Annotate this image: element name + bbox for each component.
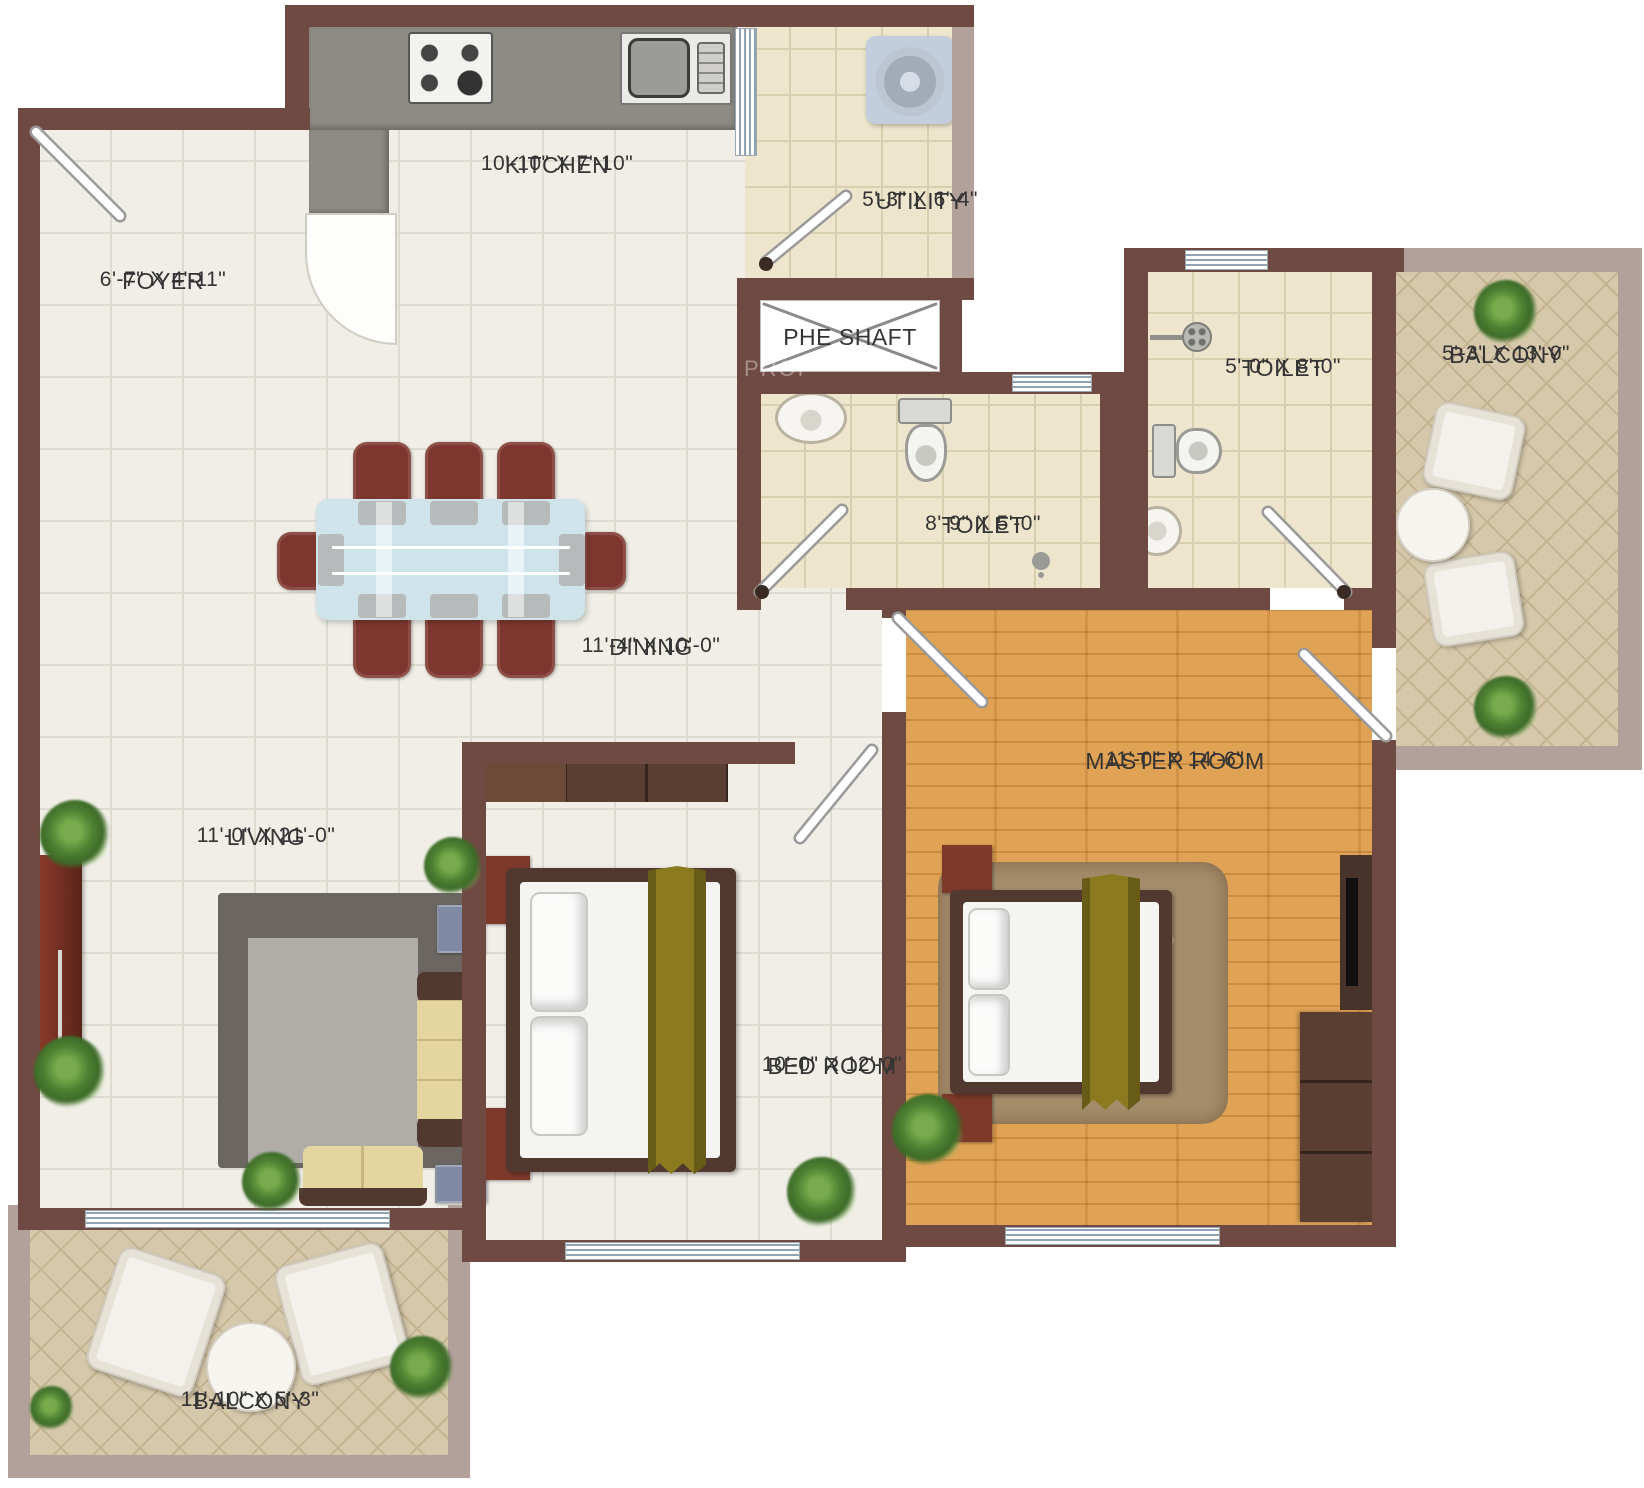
master-balcony-door bbox=[1304, 654, 1386, 736]
entrance-door bbox=[36, 132, 120, 216]
master-door bbox=[898, 618, 982, 702]
plant bbox=[242, 1152, 302, 1212]
floor-plan: KITCHEN 10'-10" X 7'-10" UTILITY 5'-3" X… bbox=[0, 0, 1644, 1488]
plant bbox=[424, 837, 482, 895]
toilet-master-door bbox=[1268, 512, 1351, 599]
doors-overlay bbox=[0, 0, 1644, 1488]
plant bbox=[390, 1336, 454, 1400]
plant bbox=[1474, 280, 1538, 344]
toilet-common-door bbox=[755, 510, 842, 599]
plant bbox=[40, 800, 110, 870]
watermark: PROP bbox=[744, 356, 814, 382]
plant bbox=[34, 1036, 106, 1108]
plant bbox=[892, 1094, 964, 1166]
plant bbox=[30, 1386, 74, 1430]
utility-door bbox=[759, 196, 846, 271]
plant bbox=[1474, 676, 1538, 740]
bedroom-door bbox=[800, 750, 872, 838]
plant bbox=[787, 1157, 857, 1227]
